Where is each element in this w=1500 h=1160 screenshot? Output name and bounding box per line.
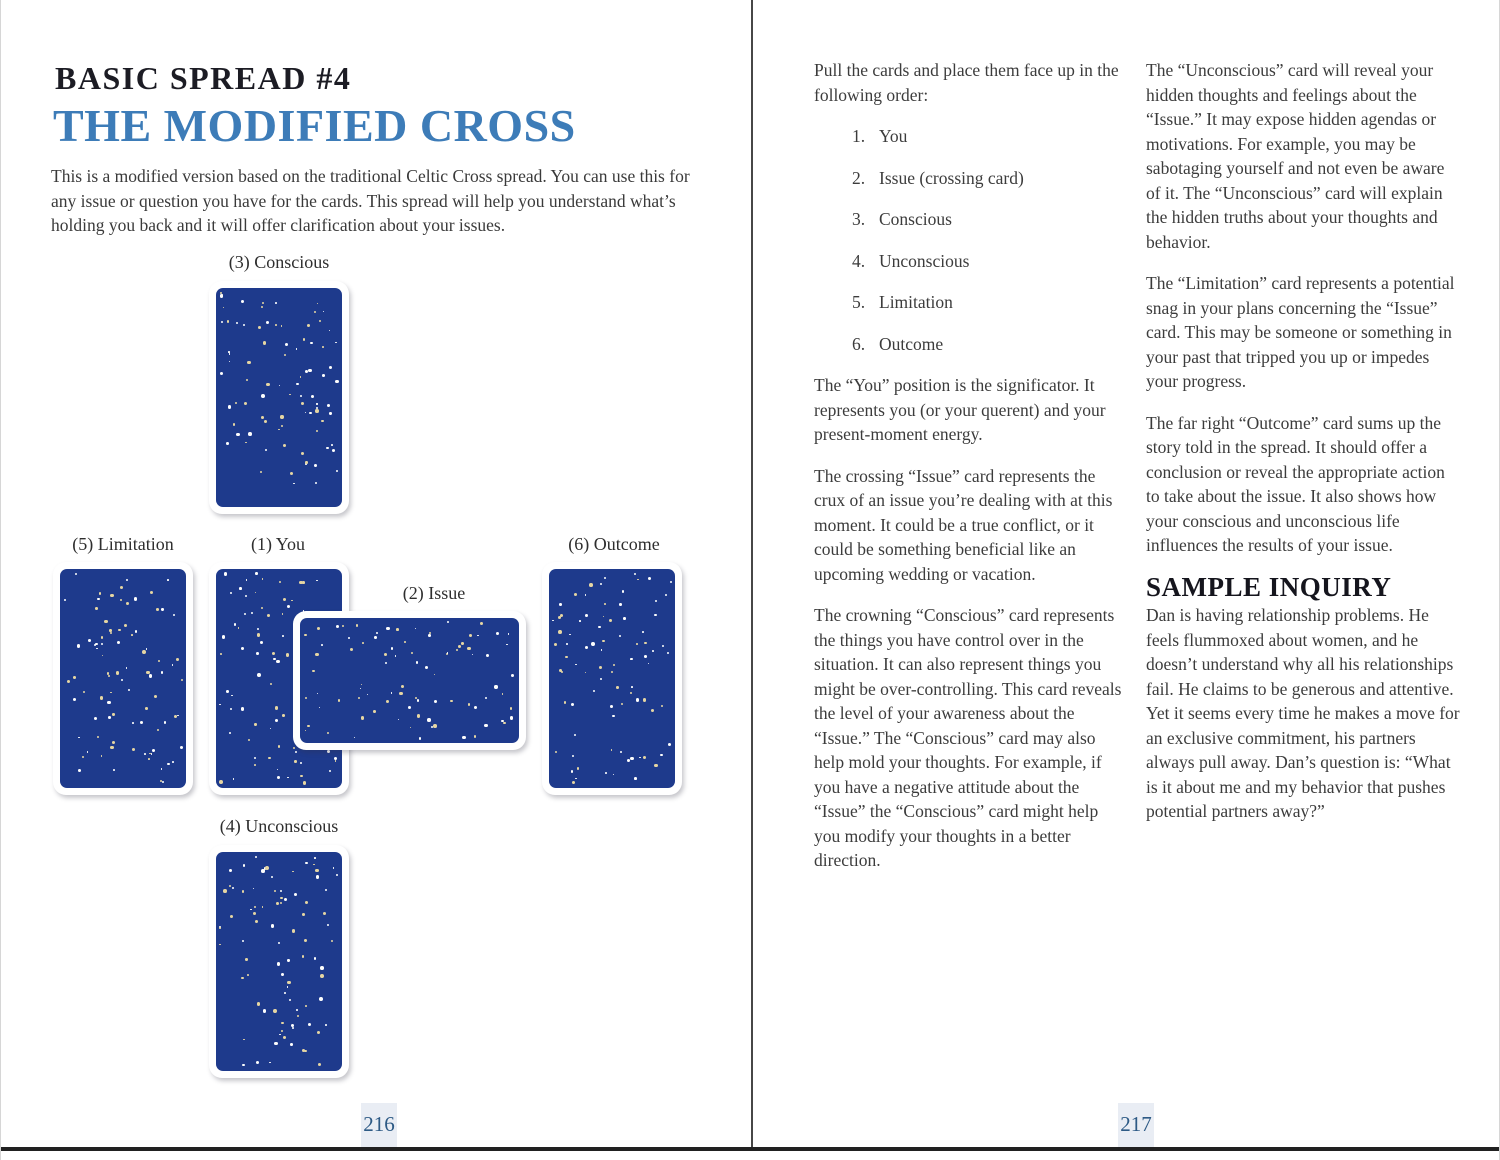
paragraph-sample-inquiry: Dan is having relationship problems. He … <box>1146 603 1460 824</box>
label-you: (1) You <box>168 534 388 555</box>
right-column-1: Pull the cards and place them face up in… <box>814 58 1124 890</box>
list-label: Conscious <box>879 207 952 232</box>
card-limitation <box>53 562 193 795</box>
right-column-2: The “Unconscious” card will reveal your … <box>1146 58 1460 841</box>
order-lead: Pull the cards and place them face up in… <box>814 58 1124 107</box>
card-outcome <box>542 562 682 795</box>
label-outcome: (6) Outcome <box>504 534 724 555</box>
paragraph-issue-card: The crossing “Issue” card represents the… <box>814 464 1124 587</box>
label-issue: (2) Issue <box>324 583 544 604</box>
label-conscious: (3) Conscious <box>169 252 389 273</box>
list-number: 3. <box>852 207 879 232</box>
spread-intro: This is a modified version based on the … <box>51 164 711 238</box>
page-right: Pull the cards and place them face up in… <box>751 0 1500 1160</box>
card-order-list: 1. You 2. Issue (crossing card) 3. Consc… <box>814 124 1124 356</box>
paragraph-you-position: The “You” position is the significator. … <box>814 373 1124 447</box>
spread-title: THE MODIFIED CROSS <box>53 99 576 152</box>
book-spread: BASIC SPREAD #4 THE MODIFIED CROSS This … <box>0 0 1500 1160</box>
list-number: 1. <box>852 124 879 149</box>
page-gutter-divider <box>751 0 753 1147</box>
list-label: Outcome <box>879 332 943 357</box>
list-number: 4. <box>852 249 879 274</box>
list-label: Limitation <box>879 290 953 315</box>
paragraph-unconscious-card: The “Unconscious” card will reveal your … <box>1146 58 1460 254</box>
paragraph-outcome-card: The far right “Outcome” card sums up the… <box>1146 411 1460 558</box>
page-number-left: 216 <box>361 1103 397 1148</box>
card-unconscious <box>209 845 349 1078</box>
spread-kicker: BASIC SPREAD #4 <box>55 60 351 97</box>
list-number: 5. <box>852 290 879 315</box>
paragraph-limitation-card: The “Limitation” card represents a poten… <box>1146 271 1460 394</box>
paragraph-conscious-card: The crowning “Conscious” card represents… <box>814 603 1124 873</box>
list-number: 6. <box>852 332 879 357</box>
list-item: 1. You <box>814 124 1124 149</box>
list-label: Unconscious <box>879 249 969 274</box>
list-label: You <box>879 124 907 149</box>
card-back-stars <box>549 569 675 788</box>
bottom-rule <box>1 1147 1500 1151</box>
page-left: BASIC SPREAD #4 THE MODIFIED CROSS This … <box>1 0 751 1160</box>
list-item: 3. Conscious <box>814 207 1124 232</box>
card-back-stars <box>216 288 342 507</box>
card-issue <box>293 611 526 750</box>
sample-inquiry-heading: SAMPLE INQUIRY <box>1146 575 1460 600</box>
list-item: 2. Issue (crossing card) <box>814 166 1124 191</box>
list-number: 2. <box>852 166 879 191</box>
card-back-stars <box>216 852 342 1071</box>
label-unconscious: (4) Unconscious <box>169 816 389 837</box>
list-label: Issue (crossing card) <box>879 166 1024 191</box>
card-back-stars <box>300 618 519 743</box>
page-number-right: 217 <box>1118 1103 1154 1148</box>
card-back-stars <box>60 569 186 788</box>
list-item: 4. Unconscious <box>814 249 1124 274</box>
list-item: 5. Limitation <box>814 290 1124 315</box>
card-conscious <box>209 281 349 514</box>
list-item: 6. Outcome <box>814 332 1124 357</box>
